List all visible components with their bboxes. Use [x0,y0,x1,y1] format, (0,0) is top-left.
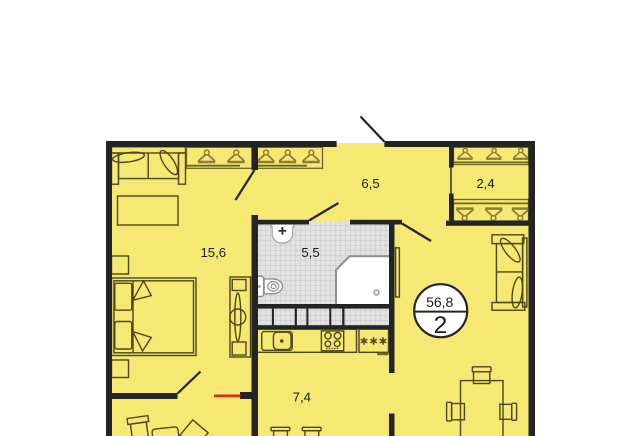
svg-text:56,8: 56,8 [426,294,453,310]
svg-text:2: 2 [434,312,448,339]
svg-text:15,6: 15,6 [200,245,226,260]
svg-text:7,4: 7,4 [293,389,311,404]
svg-text:6,5: 6,5 [361,176,379,191]
svg-text:5,5: 5,5 [301,245,319,260]
svg-text:2,4: 2,4 [476,176,494,191]
